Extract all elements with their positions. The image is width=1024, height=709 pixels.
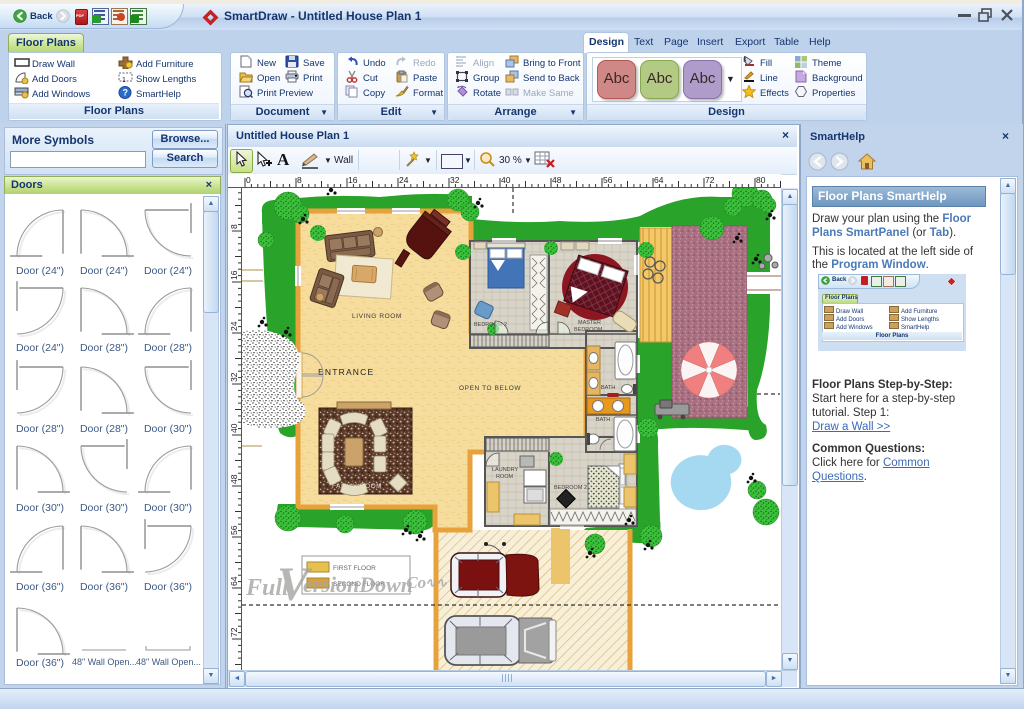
svg-text:64: 64 xyxy=(229,576,239,586)
svg-text:32: 32 xyxy=(229,372,239,382)
svg-text:0: 0 xyxy=(246,175,251,185)
svg-text:BEDROOM: BEDROOM xyxy=(574,327,603,333)
svg-text:OPEN TO BELOW: OPEN TO BELOW xyxy=(459,385,521,392)
svg-text:LIVING ROOM: LIVING ROOM xyxy=(352,313,402,320)
svg-text:64: 64 xyxy=(654,175,664,185)
svg-text:40: 40 xyxy=(501,175,511,185)
svg-text:16: 16 xyxy=(348,175,358,185)
svg-text:40: 40 xyxy=(229,423,239,433)
svg-text:ENTRANCE: ENTRANCE xyxy=(318,367,374,377)
svg-text:24: 24 xyxy=(399,175,409,185)
svg-text:ROOM: ROOM xyxy=(496,474,514,480)
svg-text:48: 48 xyxy=(229,474,239,484)
svg-text:16: 16 xyxy=(229,270,239,280)
svg-text:.Co: .Co xyxy=(402,573,426,592)
svg-text:56: 56 xyxy=(229,525,239,535)
svg-text:MASTER: MASTER xyxy=(578,320,601,326)
svg-text:BATH: BATH xyxy=(596,417,610,423)
svg-text:56: 56 xyxy=(603,175,613,185)
svg-text:8: 8 xyxy=(229,224,239,229)
svg-text:72: 72 xyxy=(229,627,239,637)
svg-text:BEDROOM 2: BEDROOM 2 xyxy=(554,485,587,491)
svg-text:48: 48 xyxy=(552,175,562,185)
svg-text:8: 8 xyxy=(297,175,302,185)
svg-text:FIRST FLOOR: FIRST FLOOR xyxy=(333,565,376,572)
svg-text:80: 80 xyxy=(756,175,766,185)
svg-text:∿∿: ∿∿ xyxy=(425,575,448,590)
svg-text:32: 32 xyxy=(450,175,460,185)
svg-text:72: 72 xyxy=(705,175,715,185)
svg-text:FAMILY ROOM: FAMILY ROOM xyxy=(332,483,382,490)
svg-text:ersionDown: ersionDown xyxy=(303,572,413,597)
svg-text:BATH: BATH xyxy=(601,385,615,391)
svg-text:LAUNDRY: LAUNDRY xyxy=(492,467,519,473)
svg-text:24: 24 xyxy=(229,321,239,331)
